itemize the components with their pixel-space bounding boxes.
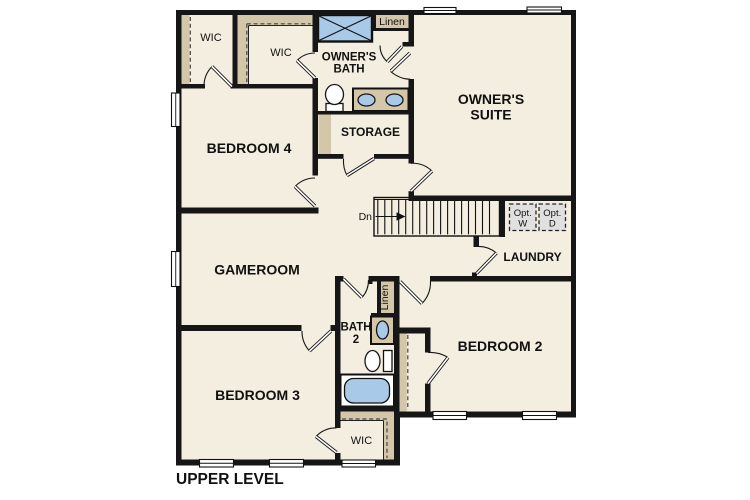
svg-text:LAUNDRY: LAUNDRY: [503, 250, 561, 264]
svg-text:OWNER'S: OWNER'S: [458, 91, 524, 107]
svg-text:GAMEROOM: GAMEROOM: [214, 262, 300, 278]
svg-text:Dn: Dn: [359, 211, 373, 223]
svg-text:D: D: [549, 219, 556, 230]
svg-text:W: W: [518, 219, 527, 230]
svg-text:2: 2: [353, 334, 359, 346]
svg-text:Opt.: Opt.: [514, 208, 532, 219]
svg-text:BATH: BATH: [333, 64, 364, 76]
svg-text:OWNER'S: OWNER'S: [322, 52, 377, 64]
svg-text:BATH: BATH: [340, 322, 371, 334]
svg-text:BEDROOM 4: BEDROOM 4: [207, 140, 292, 156]
svg-text:Linen: Linen: [379, 285, 391, 311]
svg-text:SUITE: SUITE: [470, 107, 511, 123]
svg-text:BEDROOM 2: BEDROOM 2: [458, 338, 543, 354]
svg-text:Linen: Linen: [379, 16, 405, 28]
svg-text:WIC: WIC: [270, 47, 291, 59]
svg-text:BEDROOM 3: BEDROOM 3: [215, 387, 300, 403]
svg-text:WIC: WIC: [351, 435, 372, 447]
svg-text:Opt.: Opt.: [543, 208, 561, 219]
svg-text:STORAGE: STORAGE: [341, 125, 400, 139]
svg-text:WIC: WIC: [200, 32, 221, 44]
svg-text:UPPER LEVEL: UPPER LEVEL: [176, 471, 284, 488]
